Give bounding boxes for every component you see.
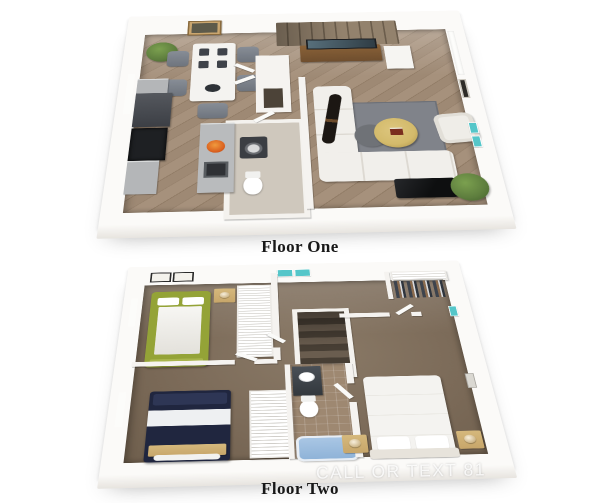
placemat (217, 48, 227, 55)
floor-one-3d-plan (108, 15, 503, 221)
tv (306, 38, 377, 49)
bed-linens (153, 454, 220, 461)
bed-mattress (154, 306, 202, 355)
bathroom-vanity (292, 366, 323, 396)
washer (240, 137, 268, 159)
window (114, 392, 126, 427)
floor-plan-page: Floor One (0, 0, 600, 503)
wire-shelf (237, 285, 274, 358)
wire-shelf (249, 390, 291, 459)
toilet (243, 177, 262, 195)
refrigerator (132, 93, 173, 127)
window-teal (277, 269, 293, 276)
bed-green (144, 291, 211, 368)
sink (203, 161, 228, 177)
wall-art-frame (172, 272, 194, 282)
wall-art-frame (187, 20, 222, 35)
floor-one-scene (0, 0, 600, 234)
floor-one-panel: Floor One (0, 0, 600, 258)
window-teal (294, 269, 310, 276)
entry-closet (255, 55, 291, 113)
floor-one-label: Floor One (0, 237, 600, 257)
wall-art-teal (471, 136, 483, 147)
placemat (198, 61, 208, 69)
dining-chair (166, 51, 189, 67)
closet-niche (264, 88, 284, 108)
kitchen-counter (136, 79, 169, 94)
floor-two-panel: CALL OR TEXT 81 Floor Two (0, 258, 600, 503)
wall-art-teal (448, 306, 459, 317)
dining-chair (197, 103, 228, 119)
bed-pillows (153, 392, 228, 405)
powder-room (223, 119, 310, 220)
kitchen-counter (123, 160, 159, 194)
interior-wall (254, 359, 277, 364)
side-table (384, 46, 415, 69)
serving-bowl (205, 84, 221, 92)
kitchen-island (197, 123, 235, 193)
headboard (369, 448, 460, 459)
art-canvas (191, 23, 217, 33)
interior-wall (411, 312, 422, 316)
stove (127, 128, 167, 161)
bed-blanket-stripe (147, 409, 231, 427)
wall-art-frame (150, 272, 172, 282)
closet-rod-clothes (393, 279, 447, 298)
toilet (299, 400, 319, 417)
bed-pillows (157, 297, 179, 305)
floor-two-3d-plan (109, 265, 504, 471)
wall-art-teal (468, 122, 480, 133)
floor-two-scene (0, 258, 600, 482)
floor-two-label: Floor Two (0, 479, 600, 499)
flower-pot (206, 140, 225, 153)
bed-navy (143, 390, 231, 463)
coffee-table-black (394, 178, 459, 199)
bed-pillows (182, 297, 204, 305)
dining-table (189, 43, 235, 101)
window (128, 298, 138, 326)
placemat (199, 48, 209, 55)
watermark-text: CALL OR TEXT 81 (316, 459, 486, 484)
placemat (217, 60, 227, 68)
decor-book (390, 128, 404, 136)
